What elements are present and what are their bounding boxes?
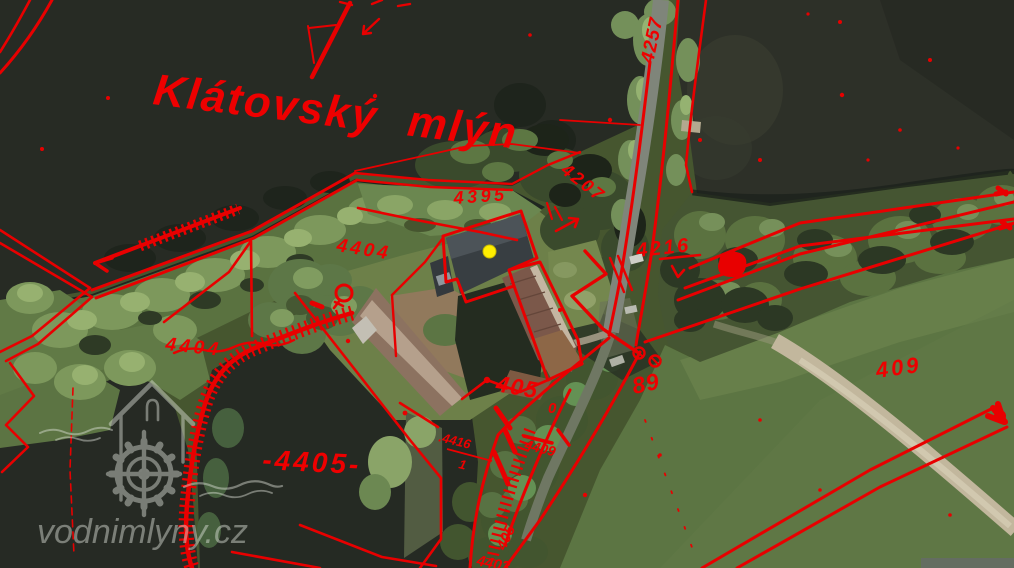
svg-text:0: 0 <box>548 400 557 417</box>
svg-text:vodnimlyny.cz: vodnimlyny.cz <box>37 513 248 551</box>
svg-text:4395: 4395 <box>452 184 508 208</box>
svg-text:-4405-: -4405- <box>262 444 362 480</box>
